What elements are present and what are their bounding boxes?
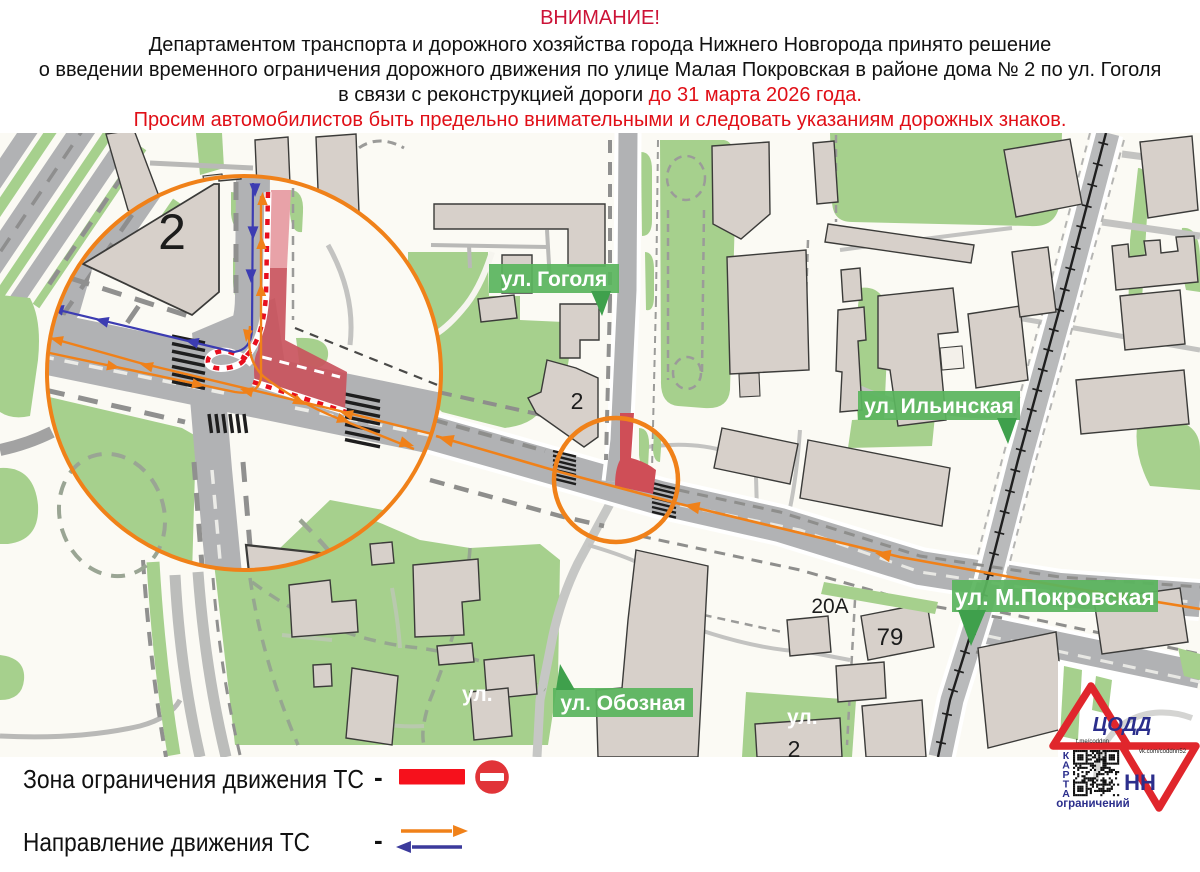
svg-text:ограничений: ограничений [1056,798,1129,810]
svg-text:ул. М.Покровская: ул. М.Покровская [955,584,1155,610]
svg-text:ЦОДД: ЦОДД [1093,714,1152,736]
svg-text:20А: 20А [811,595,848,618]
svg-text:vk.com/coddnn52: vk.com/coddnn52 [1139,749,1187,755]
svg-text:ул. Ильинская: ул. Ильинская [864,395,1013,418]
svg-text:ул.: ул. [462,683,493,706]
svg-text:ул. Гоголя: ул. Гоголя [501,268,607,291]
svg-text:ул. Обозная: ул. Обозная [560,692,685,715]
svg-text:2: 2 [158,204,186,260]
svg-text:Направление движения ТС: Направление движения ТС [23,827,310,857]
svg-text:79: 79 [877,624,904,651]
svg-text:-: - [374,825,383,855]
svg-text:Зона ограничения движения ТС: Зона ограничения движения ТС [23,764,364,794]
svg-text:ул.: ул. [787,706,818,729]
svg-text:2: 2 [788,736,801,762]
svg-text:t.me/coddnn: t.me/coddnn [1076,739,1109,745]
svg-text:2: 2 [571,388,584,414]
svg-text:НН: НН [1124,770,1156,795]
svg-text:-: - [374,762,383,792]
